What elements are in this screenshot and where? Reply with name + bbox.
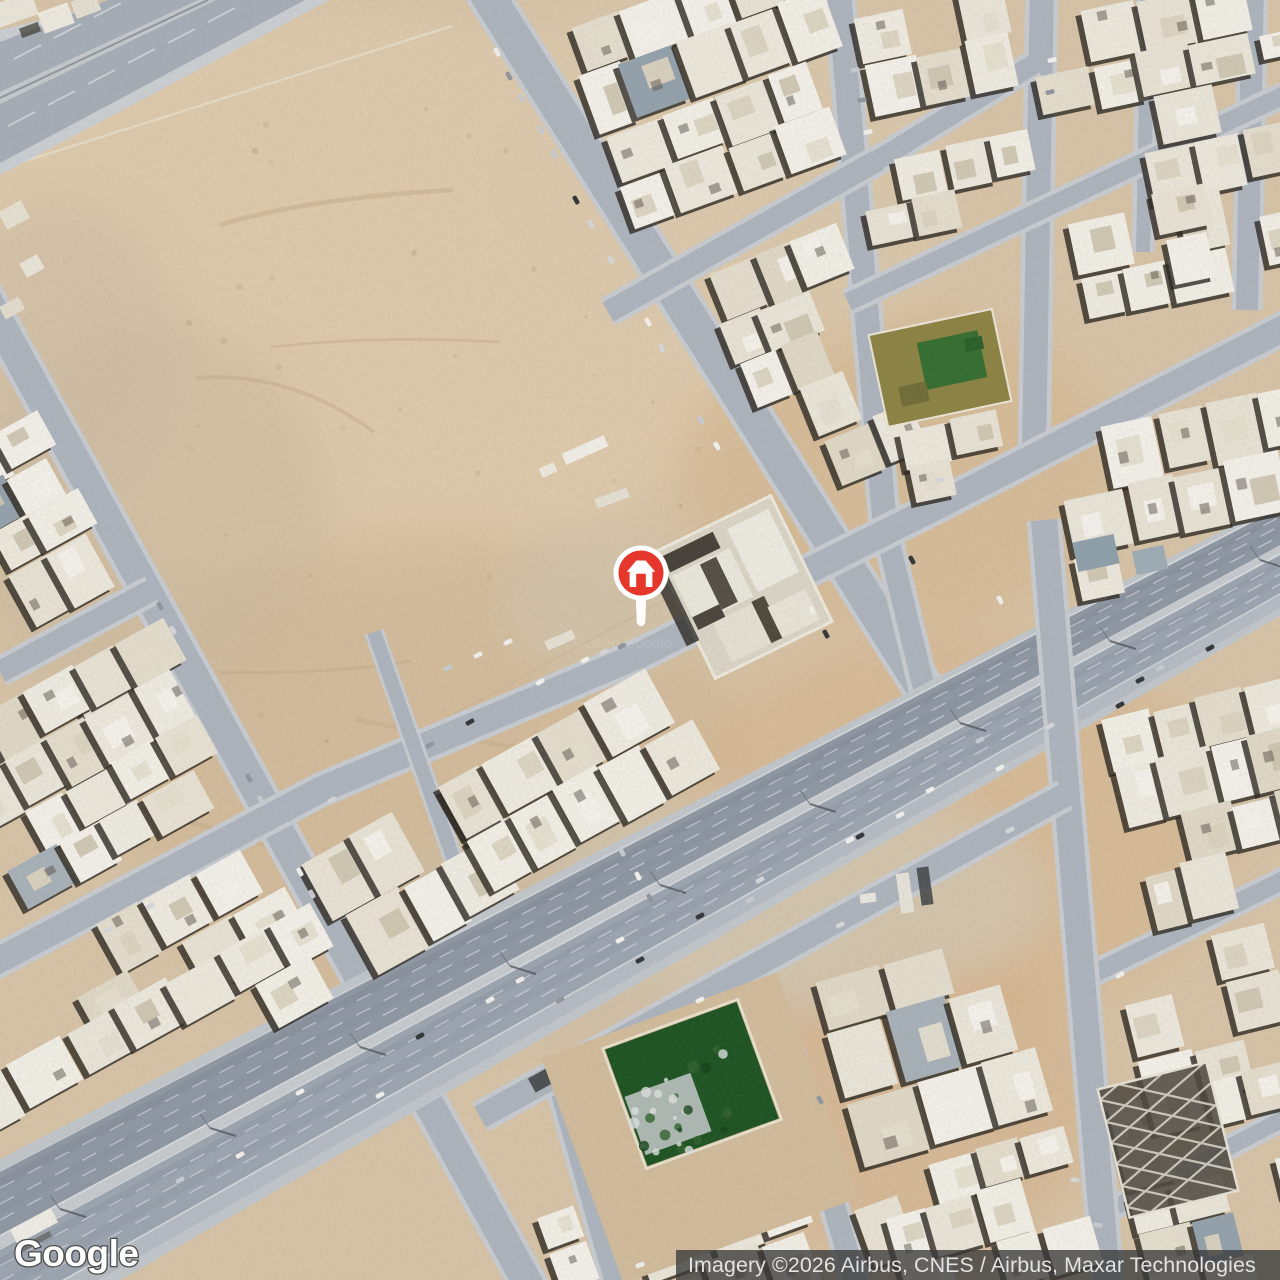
svg-text:©2026 Google: ©2026 Google bbox=[575, 635, 672, 652]
svg-text:Imagery ©2026 Airbus, CNES / A: Imagery ©2026 Airbus, CNES / Airbus, Max… bbox=[688, 1253, 1256, 1277]
svg-text:Google: Google bbox=[14, 1233, 138, 1274]
